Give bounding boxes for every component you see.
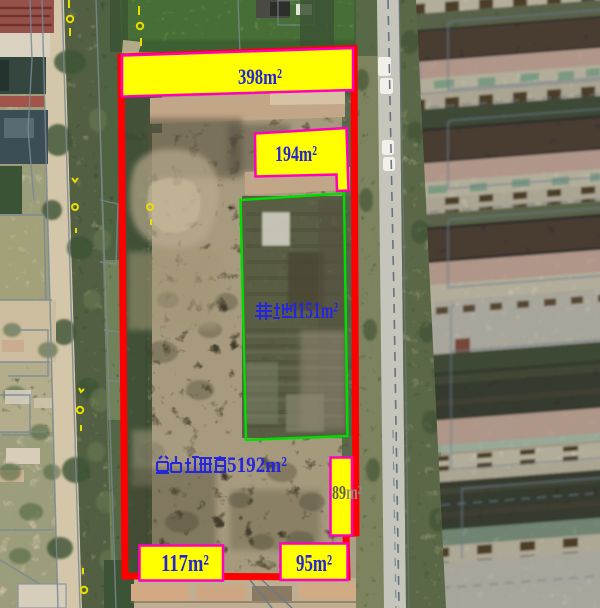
svg-text:89m²: 89m² bbox=[332, 482, 362, 504]
svg-text:117m²: 117m² bbox=[161, 551, 209, 577]
svg-text:398m²: 398m² bbox=[238, 64, 282, 89]
svg-text:1151m²: 1151m² bbox=[291, 298, 338, 323]
svg-text:5192m²: 5192m² bbox=[227, 452, 287, 477]
svg-text:95m²: 95m² bbox=[296, 551, 332, 577]
svg-text:194m²: 194m² bbox=[275, 141, 317, 166]
